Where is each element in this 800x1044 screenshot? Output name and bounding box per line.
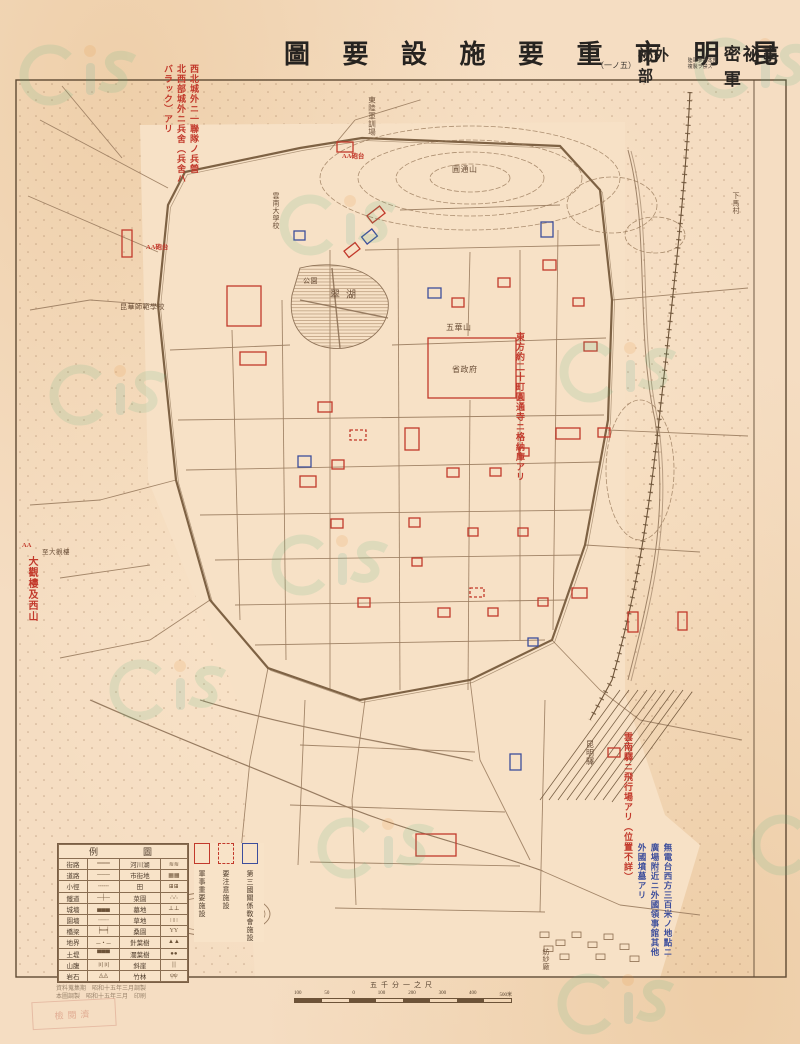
scale-ticks: 100500100200300400500米 [294, 991, 512, 998]
legend-row: 道路───市街地▦▦ [59, 870, 188, 881]
facility-key-label: 軍事重要施設 [197, 870, 207, 918]
legend-term: 山腹 [59, 959, 88, 970]
legend-symbol: ∷∷ [160, 914, 187, 925]
scale-tick: 300 [439, 991, 447, 998]
place-label: 昆明驛 [586, 740, 595, 766]
legend-term: 街路 [59, 859, 88, 870]
legend-term: 市街地 [119, 870, 160, 881]
facility-key-swatch [194, 843, 210, 864]
scale-tick: 50 [324, 991, 329, 998]
legend-term: 草地 [119, 914, 160, 925]
legend-row: 街路═══河川湖≋≋ [59, 859, 188, 870]
scale-label: 五千分一之尺 [288, 980, 518, 990]
facility-key-item: 要注意施設 [218, 843, 234, 942]
scale-tick: 100 [378, 991, 386, 998]
handwritten-note-red: 西北城外ニ一聯隊ノ兵營北西部城外ニ兵舍（兵舍ハバラック）アリ [160, 64, 199, 196]
legend-table: 例 圖 街路═══河川湖≋≋道路───市街地▦▦小徑╌╌╌田⊞⊞鐵道─┼─菜園∴… [58, 844, 188, 982]
handwritten-note-red: 雲南驛ニ飛行場アリ（位置不詳） [620, 732, 633, 960]
facility-key-item: 第三國關係敎會施設 [242, 843, 258, 942]
scale-bar: 五千分一之尺 100500100200300400500米 [288, 980, 518, 1003]
legend-term: 岩石 [59, 970, 88, 981]
legend-symbol: ─・─ [88, 937, 120, 948]
handwritten-note-red: 東方約二十町圓通寺ニ格納庫アリ [512, 332, 525, 527]
legend-term: 菜園 [119, 892, 160, 903]
aa-gun-mark: AA [22, 542, 31, 549]
legend-row: 土堤▀▀▀濶葉樹●● [59, 948, 188, 959]
legend-symbol: ╞═╡ [88, 926, 120, 937]
legend-symbol: ─── [88, 870, 120, 881]
legend-term: 道路 [59, 870, 88, 881]
classification-block: （一ノ五） 祕外部 陸軍參謀本部 複製ヲ禁ズ 密祕事軍 [596, 40, 796, 90]
aa-gun-mark: AA砲台 [342, 150, 364, 160]
note-line: 西北城外ニ一聯隊ノ兵營 [188, 64, 199, 196]
note-line: バラック）アリ [162, 64, 173, 196]
legend-box: 例 圖 街路═══河川湖≋≋道路───市街地▦▦小徑╌╌╌田⊞⊞鐵道─┼─菜園∴… [57, 843, 189, 983]
legend-symbol: ┈┈┈ [88, 914, 120, 925]
legend-row: 鐵道─┼─菜園∴∴ [59, 892, 188, 903]
facility-key-label: 第三國關係敎會施設 [245, 870, 255, 942]
legend-symbol: ||| [160, 959, 187, 970]
place-label: 紡紗廠 [542, 947, 550, 971]
legend-term: 田 [119, 881, 160, 892]
facility-key: 軍事重要施設要注意施設第三國關係敎會施設 [194, 843, 264, 942]
legend-symbol: ●● [160, 948, 187, 959]
legend-term: 墓地 [119, 903, 160, 914]
scale-bar-line [294, 998, 512, 1003]
legend-row: 岩石◬◬竹林ψψ [59, 970, 188, 981]
scale-tick: 400 [469, 991, 477, 998]
legend-row: 地界─・─針葉樹▲▲ [59, 937, 188, 948]
imprint-line1: 資料蒐集期 昭和十五年三月調製 [56, 985, 226, 993]
classification-bracket: （一ノ五） [596, 60, 634, 71]
place-label: 五華山 [446, 322, 472, 332]
legend-row: 城墻▄▄▄墓地⊥⊥ [59, 903, 188, 914]
legend-term: 濶葉樹 [119, 948, 160, 959]
legend-symbol: ⊞⊞ [160, 881, 187, 892]
classification-stamp: 密祕事軍 [724, 40, 796, 90]
legend-row: 山腹〣〣斜崖||| [59, 959, 188, 970]
scale-tick: 200 [408, 991, 416, 998]
approval-stamp: 檢閱濟 [31, 998, 116, 1030]
legend-symbol: ≋≋ [160, 859, 187, 870]
scale-tick: 500米 [499, 991, 512, 998]
legend-term: 小徑 [59, 881, 88, 892]
aa-gun-mark: AA砲台 [146, 241, 168, 251]
classification-note: 陸軍參謀本部 複製ヲ禁ズ [688, 59, 720, 71]
handwritten-note-red: 大觀樓及西山 [24, 556, 37, 666]
legend-term: 斜崖 [119, 959, 160, 970]
note-line: 無電台西方三百米ノ地點ニ [662, 843, 673, 993]
legend-term: 土堤 [59, 948, 88, 959]
classification-secondary: 祕外部 [638, 44, 684, 86]
legend-row: 小徑╌╌╌田⊞⊞ [59, 881, 188, 892]
note-line: 東方約二十町圓通寺ニ格納庫アリ [514, 332, 525, 527]
note-line: 大觀樓及西山 [26, 556, 37, 666]
place-label: 雲南大學校 [272, 192, 280, 230]
legend-term: 竹林 [119, 970, 160, 981]
legend-symbol: ▀▀▀ [88, 948, 120, 959]
legend-title: 例 圖 [59, 845, 188, 859]
map-title: 圖 要 設 施 要 重 市 明 昆 [284, 34, 614, 71]
legend-symbol: ◬◬ [88, 970, 120, 981]
legend-row: 園墻┈┈┈草地∷∷ [59, 914, 188, 925]
facility-key-swatch [218, 843, 234, 864]
legend-term: 針葉樹 [119, 937, 160, 948]
legend-term: 地界 [59, 937, 88, 948]
facility-key-label: 要注意施設 [221, 870, 231, 910]
place-label: 昆華師範學校 [120, 302, 165, 311]
legend-symbol: ▄▄▄ [88, 903, 120, 914]
place-label: 翠湖 [330, 289, 362, 301]
place-label: 下馬村 [732, 192, 740, 215]
place-label: 公園 [303, 277, 318, 285]
place-label: 東陸軍訓場 [367, 95, 376, 137]
legend-symbol: ▦▦ [160, 870, 187, 881]
legend-symbol: 〣〣 [88, 959, 120, 970]
place-label: 至大觀樓 [42, 547, 70, 556]
scale-tick: 0 [352, 991, 355, 998]
place-label: 圓通山 [452, 164, 478, 174]
note-line: 北西部城外ニ兵舍（兵舍ハ [175, 64, 186, 196]
note-line: 外國墳墓アリ [636, 843, 647, 993]
legend-term: 城墻 [59, 903, 88, 914]
handwritten-note-blue: 無電台西方三百米ノ地點ニ廣場附近ニ外國領事館其他外國墳墓アリ [634, 843, 673, 993]
legend-symbol: ─┼─ [88, 892, 120, 903]
scale-tick: 100 [294, 991, 302, 998]
legend-symbol: ψψ [160, 970, 187, 981]
legend-symbol: ╌╌╌ [88, 881, 120, 892]
legend-symbol: ⊥⊥ [160, 903, 187, 914]
legend-term: 園墻 [59, 914, 88, 925]
note-line: 雲南驛ニ飛行場アリ（位置不詳） [622, 732, 633, 960]
legend-term: 鐵道 [59, 892, 88, 903]
legend-term: 橋梁 [59, 926, 88, 937]
legend-symbol: ═══ [88, 859, 120, 870]
legend-term: 河川湖 [119, 859, 160, 870]
legend-symbol: YY [160, 926, 187, 937]
note-line: 廣場附近ニ外國領事館其他 [649, 843, 660, 993]
legend-symbol: ▲▲ [160, 937, 187, 948]
legend-term: 桑園 [119, 926, 160, 937]
legend-symbol: ∴∴ [160, 892, 187, 903]
facility-key-item: 軍事重要施設 [194, 843, 210, 942]
legend-row: 橋梁╞═╡桑園YY [59, 926, 188, 937]
facility-key-swatch [242, 843, 258, 864]
place-label: 省政府 [452, 364, 478, 374]
